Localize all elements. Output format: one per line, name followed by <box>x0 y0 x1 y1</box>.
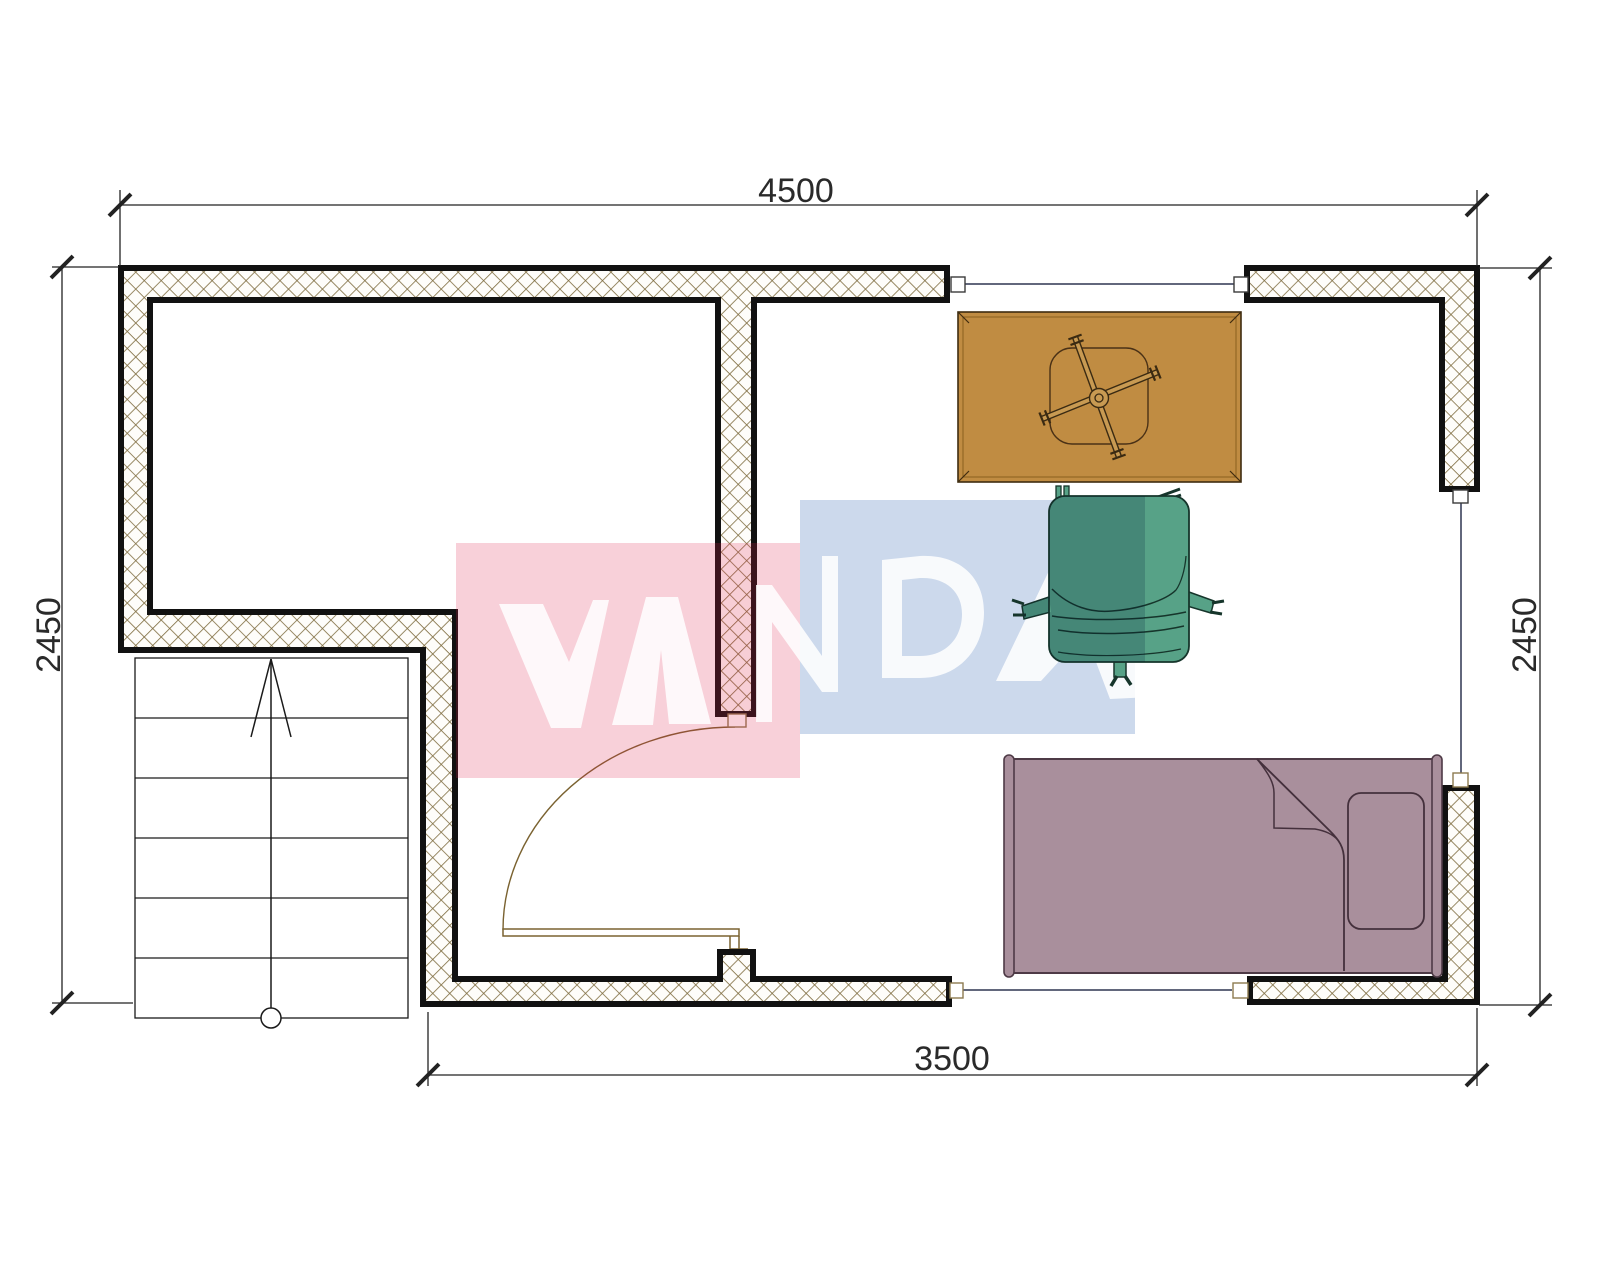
svg-text:4500: 4500 <box>758 172 834 210</box>
svg-text:3500: 3500 <box>914 1040 990 1078</box>
svg-text:2450: 2450 <box>30 597 68 673</box>
svg-text:2450: 2450 <box>1506 597 1544 673</box>
